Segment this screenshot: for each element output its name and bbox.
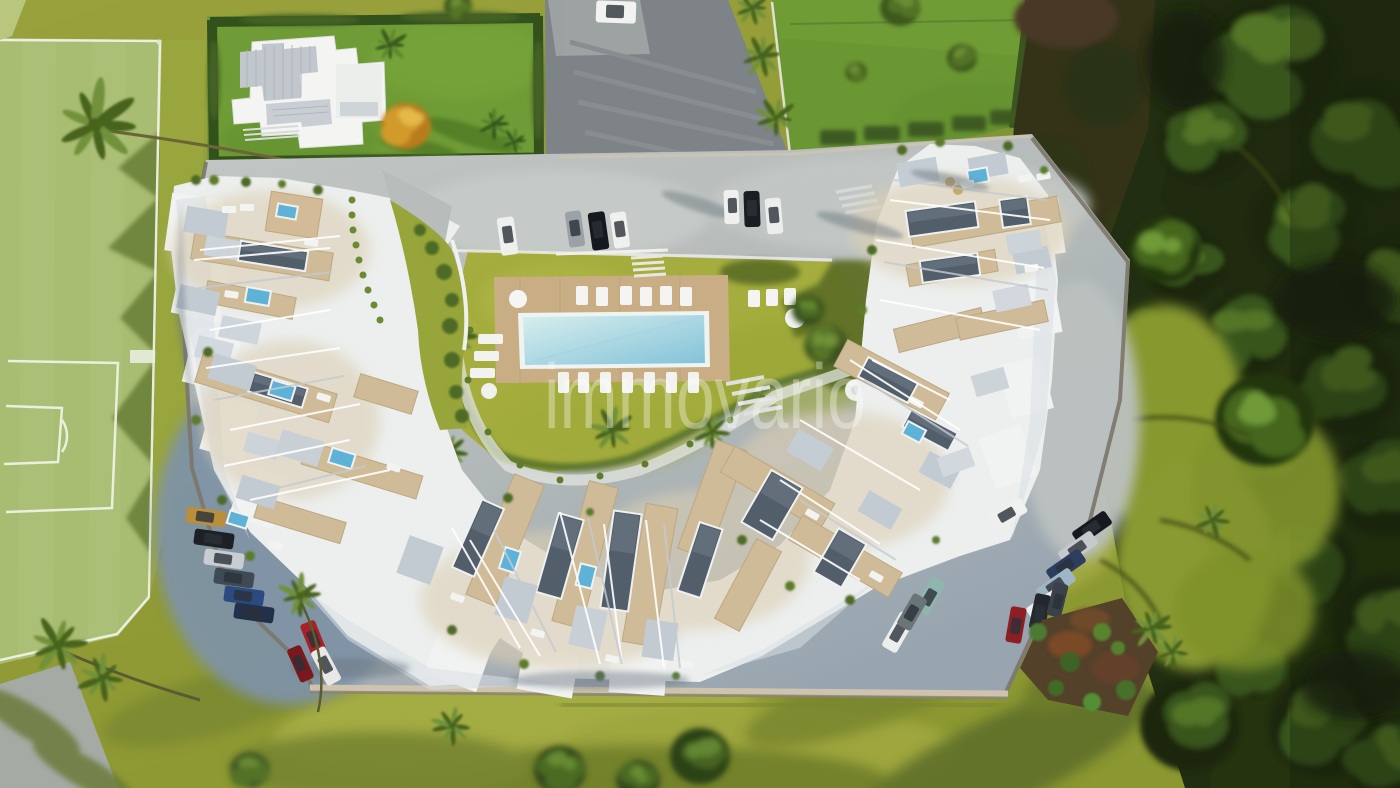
svg-text:immovario: immovario	[544, 346, 866, 448]
